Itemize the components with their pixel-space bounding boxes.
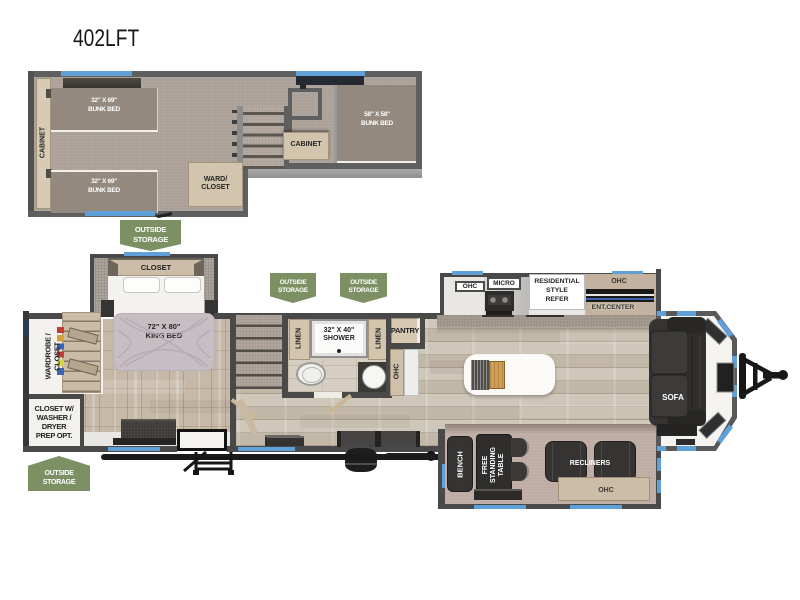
svg-text:SOFA: SOFA (662, 393, 684, 402)
